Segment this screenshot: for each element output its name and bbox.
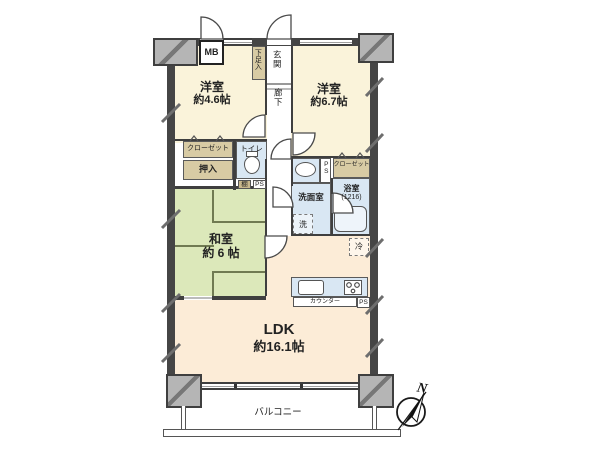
door-entrance <box>267 15 291 39</box>
door-western-right <box>293 133 315 155</box>
shoe-cabinet-label: 下足入 <box>253 49 261 70</box>
room-name: 和室 <box>181 232 261 246</box>
bathroom-size: (1216) <box>333 194 370 202</box>
closet-left-label: クローゼット <box>183 145 233 153</box>
bathroom-label: 浴室 (1216) <box>333 184 370 202</box>
counter-label: カウンター <box>293 299 357 306</box>
shelf-label: 棚 <box>238 181 251 189</box>
room-area: 約16.1帖 <box>229 339 329 355</box>
ps-vertical-label: PS <box>322 161 330 175</box>
door-ldk <box>265 236 287 258</box>
closet-right-label: クローゼット <box>333 162 370 169</box>
room-area: 約 6 帖 <box>181 246 261 260</box>
meter-box-label: MB <box>199 47 224 58</box>
room-label-japanese: 和室 約 6 帖 <box>181 232 261 261</box>
room-label-western-right: 洋室 約6.7帖 <box>289 82 369 110</box>
washer-label: 洗 <box>293 220 313 230</box>
toilet-label: トイレ <box>236 144 267 153</box>
washroom-label: 洗面室 <box>291 192 331 202</box>
door-toilet <box>271 139 291 159</box>
room-label-western-left: 洋室 約4.6帖 <box>172 80 252 108</box>
floorplan: N 洋室 約4.6帖 洋室 約6.7帖 和室 約 6 帖 LDK 約16.1帖 … <box>0 0 600 450</box>
room-name: 洋室 <box>289 82 369 96</box>
window-ticks <box>234 384 303 388</box>
room-area: 約6.7帖 <box>289 96 369 109</box>
room-label-ldk: LDK 約16.1帖 <box>229 321 329 355</box>
fridge-label: 冷 <box>349 242 369 252</box>
bathroom-name: 浴室 <box>333 184 370 194</box>
room-name: 洋室 <box>172 80 252 94</box>
room-area: 約4.6帖 <box>172 94 252 107</box>
corridor-label: 廊下 <box>273 88 283 107</box>
oshiire-label: 押入 <box>183 164 233 175</box>
door-western-left <box>243 115 265 137</box>
compass-north-label: N <box>414 380 429 397</box>
ps-kitchen-label: PS <box>357 299 370 307</box>
entrance-label: 玄関 <box>272 50 282 69</box>
door-washroom <box>273 187 293 207</box>
ps-toilet-label: PS <box>253 181 266 189</box>
compass: N <box>397 380 429 430</box>
wall-hatches <box>162 78 383 362</box>
stove-burners <box>347 283 360 293</box>
door-mb <box>201 17 223 39</box>
room-name: LDK <box>229 321 329 339</box>
balcony-label: バルコニー <box>238 407 318 418</box>
